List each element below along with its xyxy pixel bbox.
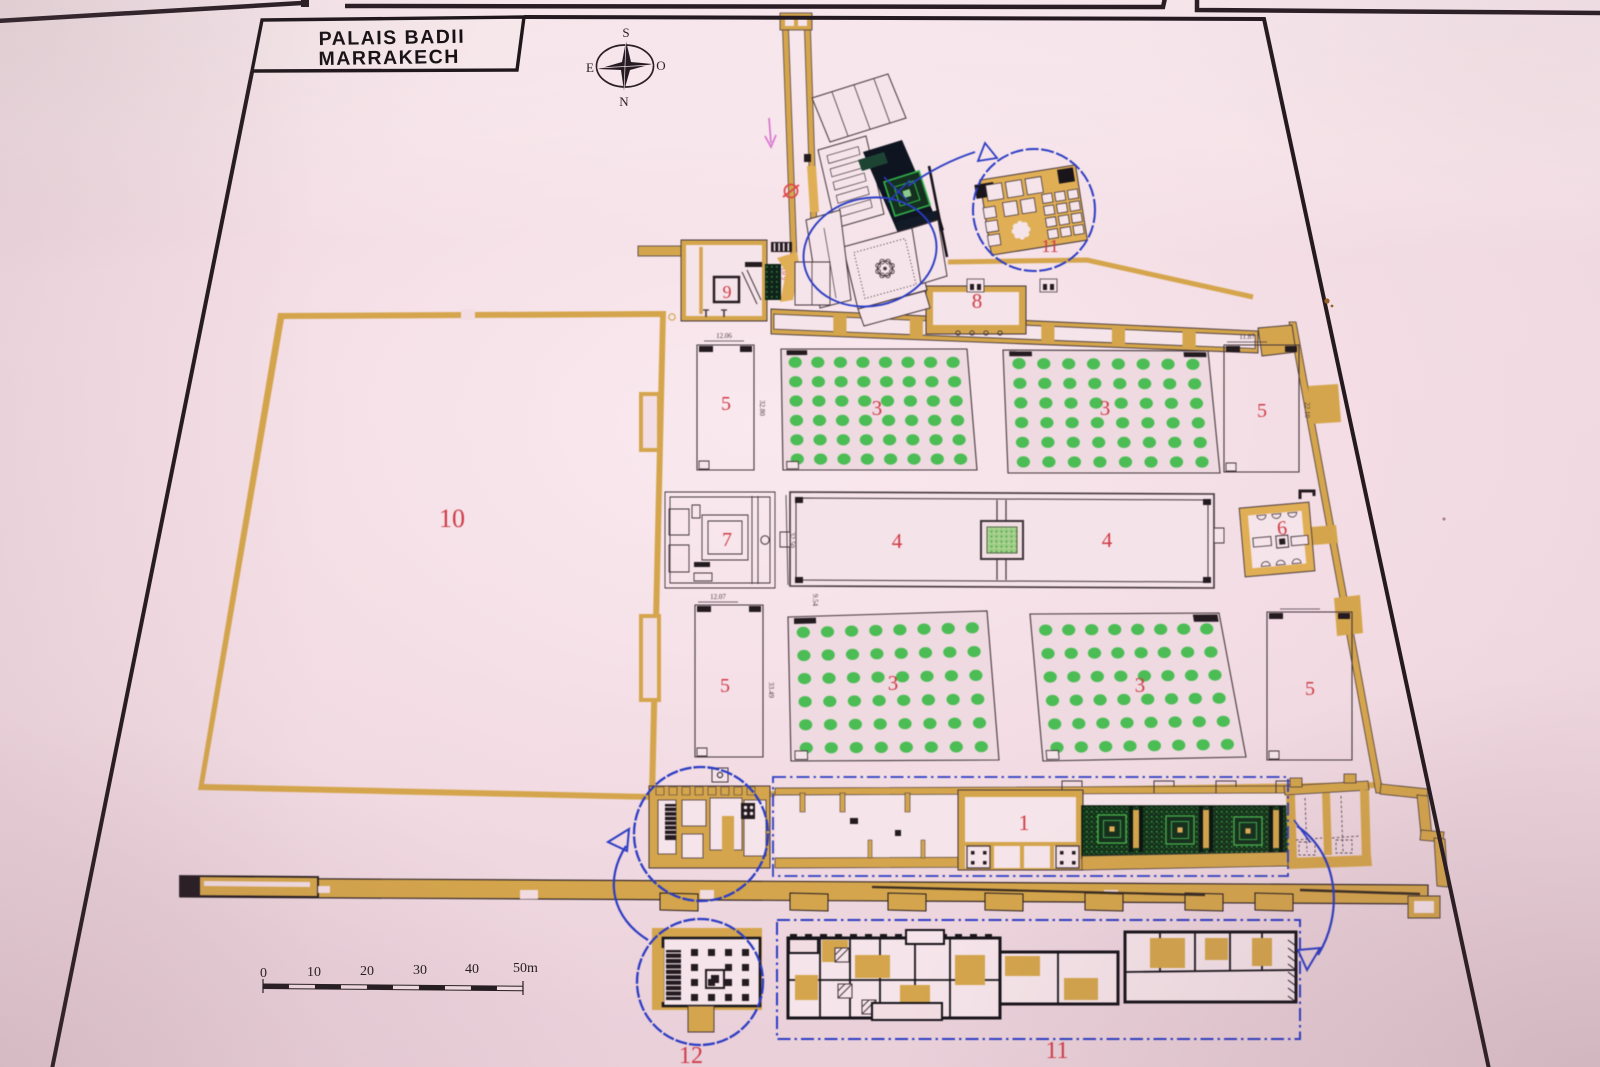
- svg-text:E: E: [586, 60, 594, 75]
- svg-text:O: O: [656, 58, 665, 73]
- svg-text:50m: 50m: [513, 961, 538, 976]
- svg-text:20: 20: [360, 964, 374, 979]
- svg-text:MARRAKECH: MARRAKECH: [318, 46, 460, 70]
- svg-text:0: 0: [260, 966, 267, 981]
- svg-text:30: 30: [413, 963, 427, 978]
- svg-text:N: N: [619, 94, 629, 109]
- svg-text:S: S: [622, 25, 629, 40]
- svg-text:10: 10: [307, 965, 321, 980]
- svg-text:40: 40: [465, 962, 479, 977]
